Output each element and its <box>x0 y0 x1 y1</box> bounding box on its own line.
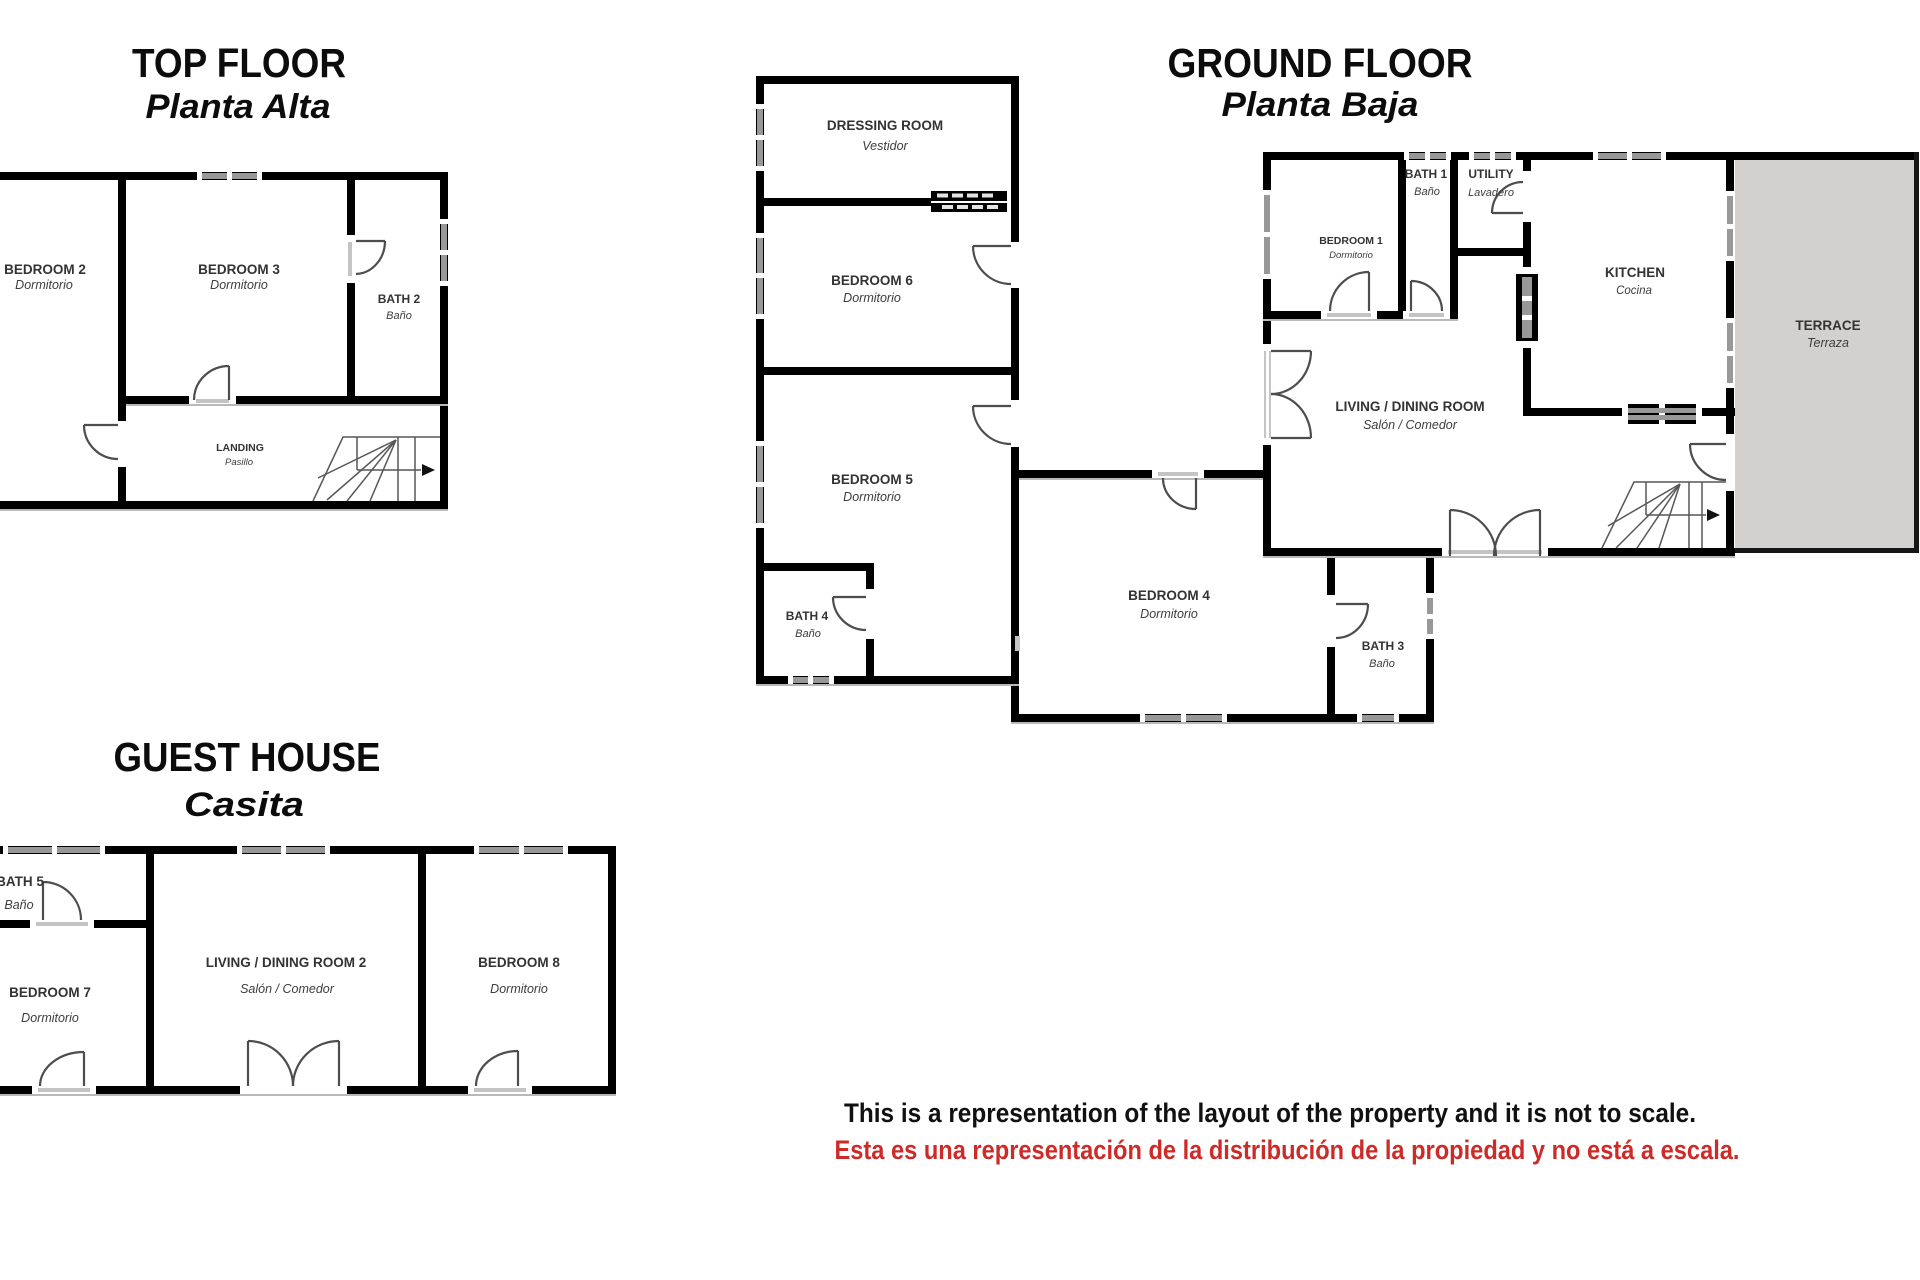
svg-text:TOP FLOOR: TOP FLOOR <box>132 40 346 86</box>
svg-text:BATH 4: BATH 4 <box>786 609 829 623</box>
svg-text:Casita: Casita <box>184 786 304 824</box>
svg-text:BEDROOM 4: BEDROOM 4 <box>1128 588 1210 603</box>
svg-text:Salón / Comedor: Salón / Comedor <box>1363 418 1458 432</box>
svg-text:Planta Baja: Planta Baja <box>1222 86 1419 124</box>
svg-text:LIVING / DINING ROOM: LIVING / DINING ROOM <box>1335 399 1484 414</box>
svg-text:Dormitorio: Dormitorio <box>1140 607 1198 621</box>
svg-text:Dormitorio: Dormitorio <box>843 490 901 504</box>
svg-text:Salón / Comedor: Salón / Comedor <box>240 982 335 996</box>
svg-text:DRESSING ROOM: DRESSING ROOM <box>827 118 943 133</box>
svg-text:Vestidor: Vestidor <box>862 139 908 153</box>
svg-text:TERRACE: TERRACE <box>1795 318 1860 333</box>
svg-text:LANDING: LANDING <box>216 442 264 454</box>
svg-text:Cocina: Cocina <box>1616 285 1652 297</box>
svg-text:BATH 3: BATH 3 <box>1362 639 1405 653</box>
svg-text:GUEST HOUSE: GUEST HOUSE <box>114 734 381 780</box>
svg-text:Dormitorio: Dormitorio <box>15 278 73 292</box>
svg-text:Lavadero: Lavadero <box>1468 187 1514 199</box>
svg-text:Dormitorio: Dormitorio <box>1329 250 1373 261</box>
svg-text:Terraza: Terraza <box>1807 336 1849 350</box>
svg-text:Dormitorio: Dormitorio <box>490 982 548 996</box>
svg-text:BEDROOM 8: BEDROOM 8 <box>478 955 560 970</box>
svg-text:Dormitorio: Dormitorio <box>843 291 901 305</box>
svg-text:Planta Alta: Planta Alta <box>146 88 331 126</box>
svg-text:BEDROOM 5: BEDROOM 5 <box>831 472 913 487</box>
svg-text:Baño: Baño <box>795 628 821 640</box>
svg-text:Baño: Baño <box>1369 658 1395 670</box>
svg-text:BEDROOM 2: BEDROOM 2 <box>4 262 86 277</box>
svg-text:BEDROOM 3: BEDROOM 3 <box>198 262 280 277</box>
svg-text:UTILITY: UTILITY <box>1468 167 1513 181</box>
svg-text:KITCHEN: KITCHEN <box>1605 265 1665 280</box>
svg-text:LIVING / DINING ROOM 2: LIVING / DINING ROOM 2 <box>206 955 367 970</box>
svg-text:BATH 1: BATH 1 <box>1405 167 1448 181</box>
svg-text:BEDROOM 7: BEDROOM 7 <box>9 985 91 1000</box>
svg-text:Esta es una representación de: Esta es una representación de la distrib… <box>835 1135 1740 1165</box>
svg-text:Baño: Baño <box>386 310 412 322</box>
svg-text:BEDROOM 1: BEDROOM 1 <box>1319 235 1383 247</box>
svg-text:This is a representation of th: This is a representation of the layout o… <box>844 1098 1696 1128</box>
svg-text:BATH 2: BATH 2 <box>378 292 421 306</box>
svg-text:Baño: Baño <box>1414 186 1440 198</box>
svg-text:Baño: Baño <box>4 898 33 912</box>
svg-text:BEDROOM 6: BEDROOM 6 <box>831 273 913 288</box>
svg-text:Pasillo: Pasillo <box>225 457 253 468</box>
svg-text:Dormitorio: Dormitorio <box>21 1011 79 1025</box>
svg-text:GROUND FLOOR: GROUND FLOOR <box>1168 40 1473 86</box>
svg-text:BATH 5: BATH 5 <box>0 874 44 889</box>
svg-text:Dormitorio: Dormitorio <box>210 278 268 292</box>
